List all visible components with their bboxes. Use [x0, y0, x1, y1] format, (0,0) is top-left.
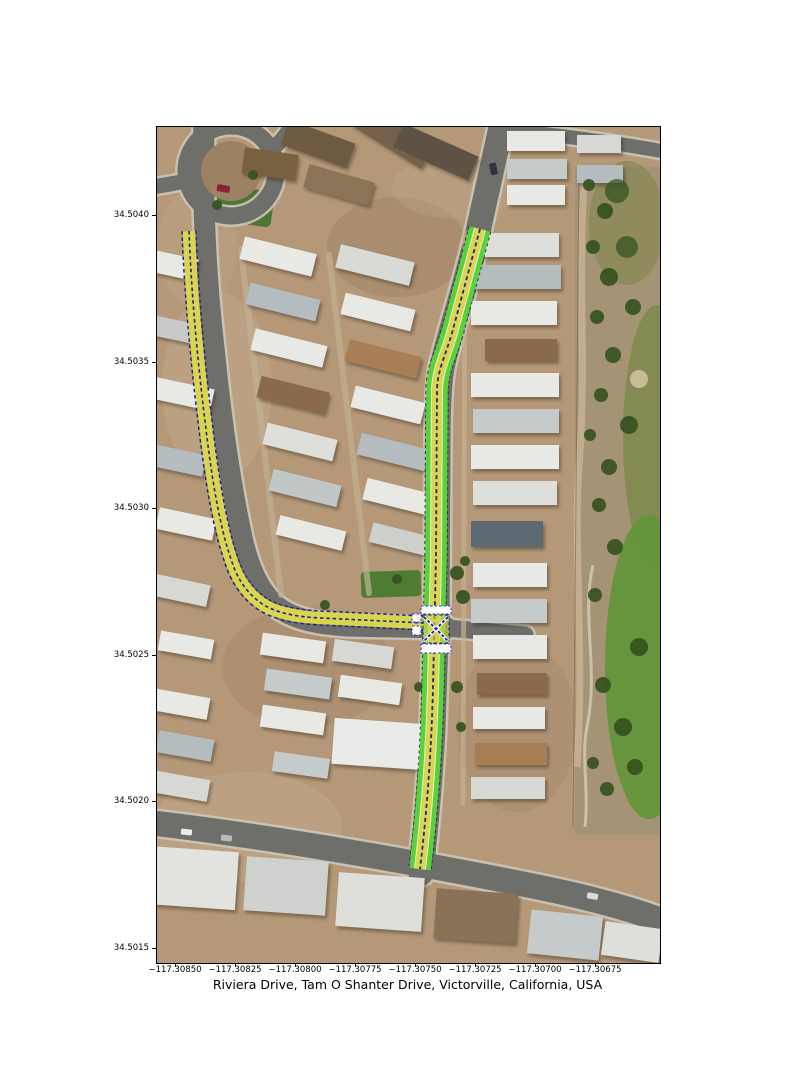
y-tick-label: 34.5035	[92, 356, 149, 368]
y-tick-label: 34.5025	[92, 649, 149, 661]
x-tick-label: −117.30725	[443, 965, 507, 976]
crosswalk-north	[421, 606, 451, 614]
figure-title: Riviera Drive, Tam O Shanter Drive, Vict…	[156, 977, 659, 993]
cross-street-stub	[447, 628, 525, 635]
y-tick-label: 34.5040	[92, 209, 149, 221]
x-tick-label: −117.30775	[323, 965, 387, 976]
crosswalk-west-lower	[412, 626, 421, 635]
plot-area	[156, 126, 661, 964]
crosswalk-west-upper	[412, 614, 421, 622]
y-tick-label: 34.5020	[92, 795, 149, 807]
x-tick-label: −117.30850	[143, 965, 207, 976]
x-tick-label: −117.30750	[383, 965, 447, 976]
crosswalk-south	[421, 644, 451, 653]
matplotlib-figure: 34.5040 34.5035 34.5030 34.5025 34.5020 …	[0, 0, 786, 1080]
x-tick-label: −117.30675	[563, 965, 627, 976]
satellite-basemap	[157, 127, 660, 963]
x-tick-label: −117.30700	[503, 965, 567, 976]
y-tick-label: 34.5030	[92, 502, 149, 514]
y-tick-label: 34.5015	[92, 942, 149, 954]
x-tick-label: −117.30825	[203, 965, 267, 976]
x-tick-label: −117.30800	[263, 965, 327, 976]
